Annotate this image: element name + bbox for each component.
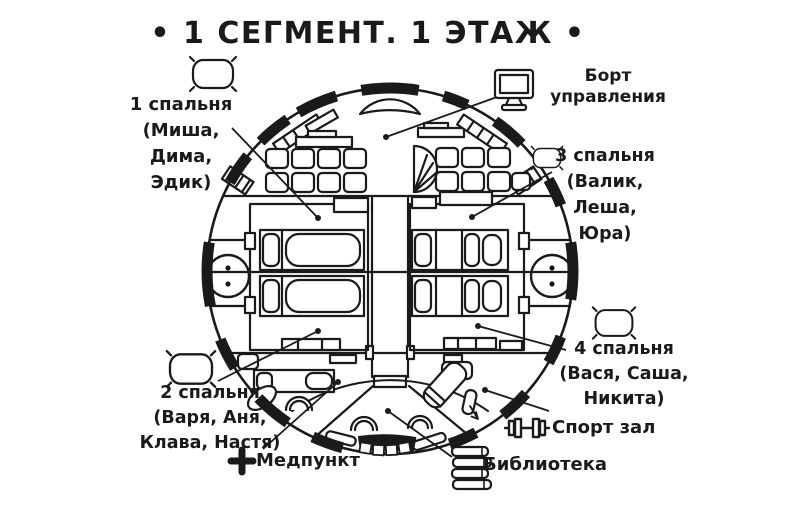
fan-shape [414, 146, 437, 192]
label-line: (Миша, [116, 118, 246, 144]
pillow-icon [593, 307, 635, 338]
label-line: Юра) [548, 221, 662, 247]
label-line: Борт [538, 66, 678, 87]
label-line: (Варя, Аня, [130, 406, 290, 431]
label-bedroom1: 1 спальня (Миша, Дима, Эдик) [116, 92, 246, 196]
label-gym: Спорт зал [552, 417, 655, 438]
label-line: 4 спальня [554, 337, 694, 362]
label-med-point: Медпункт [256, 450, 360, 471]
label-line: 2 спальня [130, 381, 290, 406]
label-line: 1 спальня [116, 92, 246, 118]
bed-bedroom1 [260, 230, 364, 270]
label-library: Библиотека [483, 454, 607, 475]
label-line: (Валик, [548, 169, 662, 195]
bed-bedroom3 [412, 230, 508, 270]
control-deck-area [222, 99, 542, 194]
label-line: 3 спальня [548, 143, 662, 169]
label-line: Никита) [554, 387, 694, 412]
label-line: (Вася, Саша, [554, 362, 694, 387]
label-control-deck: Борт управления [538, 66, 678, 108]
dumbbell-icon [505, 419, 549, 437]
segment-floor-plan: • 1 СЕГМЕНТ. 1 ЭТАЖ • 1 спальня (Миша, Д… [0, 0, 800, 510]
monitor-icon [495, 70, 533, 110]
floor-plan-drawing [0, 0, 800, 510]
label-line: Леша, [548, 195, 662, 221]
page-title: • 1 СЕГМЕНТ. 1 ЭТАЖ • [150, 16, 585, 51]
bed-bedroom4 [412, 276, 508, 316]
label-bedroom3: 3 спальня (Валик, Леша, Юра) [548, 143, 662, 247]
label-line: Эдик) [116, 170, 246, 196]
label-line: управления [538, 87, 678, 108]
gym-area [420, 359, 478, 419]
pillow-icon [190, 57, 236, 91]
label-line: Дима, [116, 144, 246, 170]
label-bedroom4: 4 спальня (Вася, Саша, Никита) [554, 337, 694, 412]
bed-bedroom2 [260, 276, 364, 316]
label-bedroom2: 2 спальня (Варя, Аня, Клава, Настя) [130, 381, 290, 456]
